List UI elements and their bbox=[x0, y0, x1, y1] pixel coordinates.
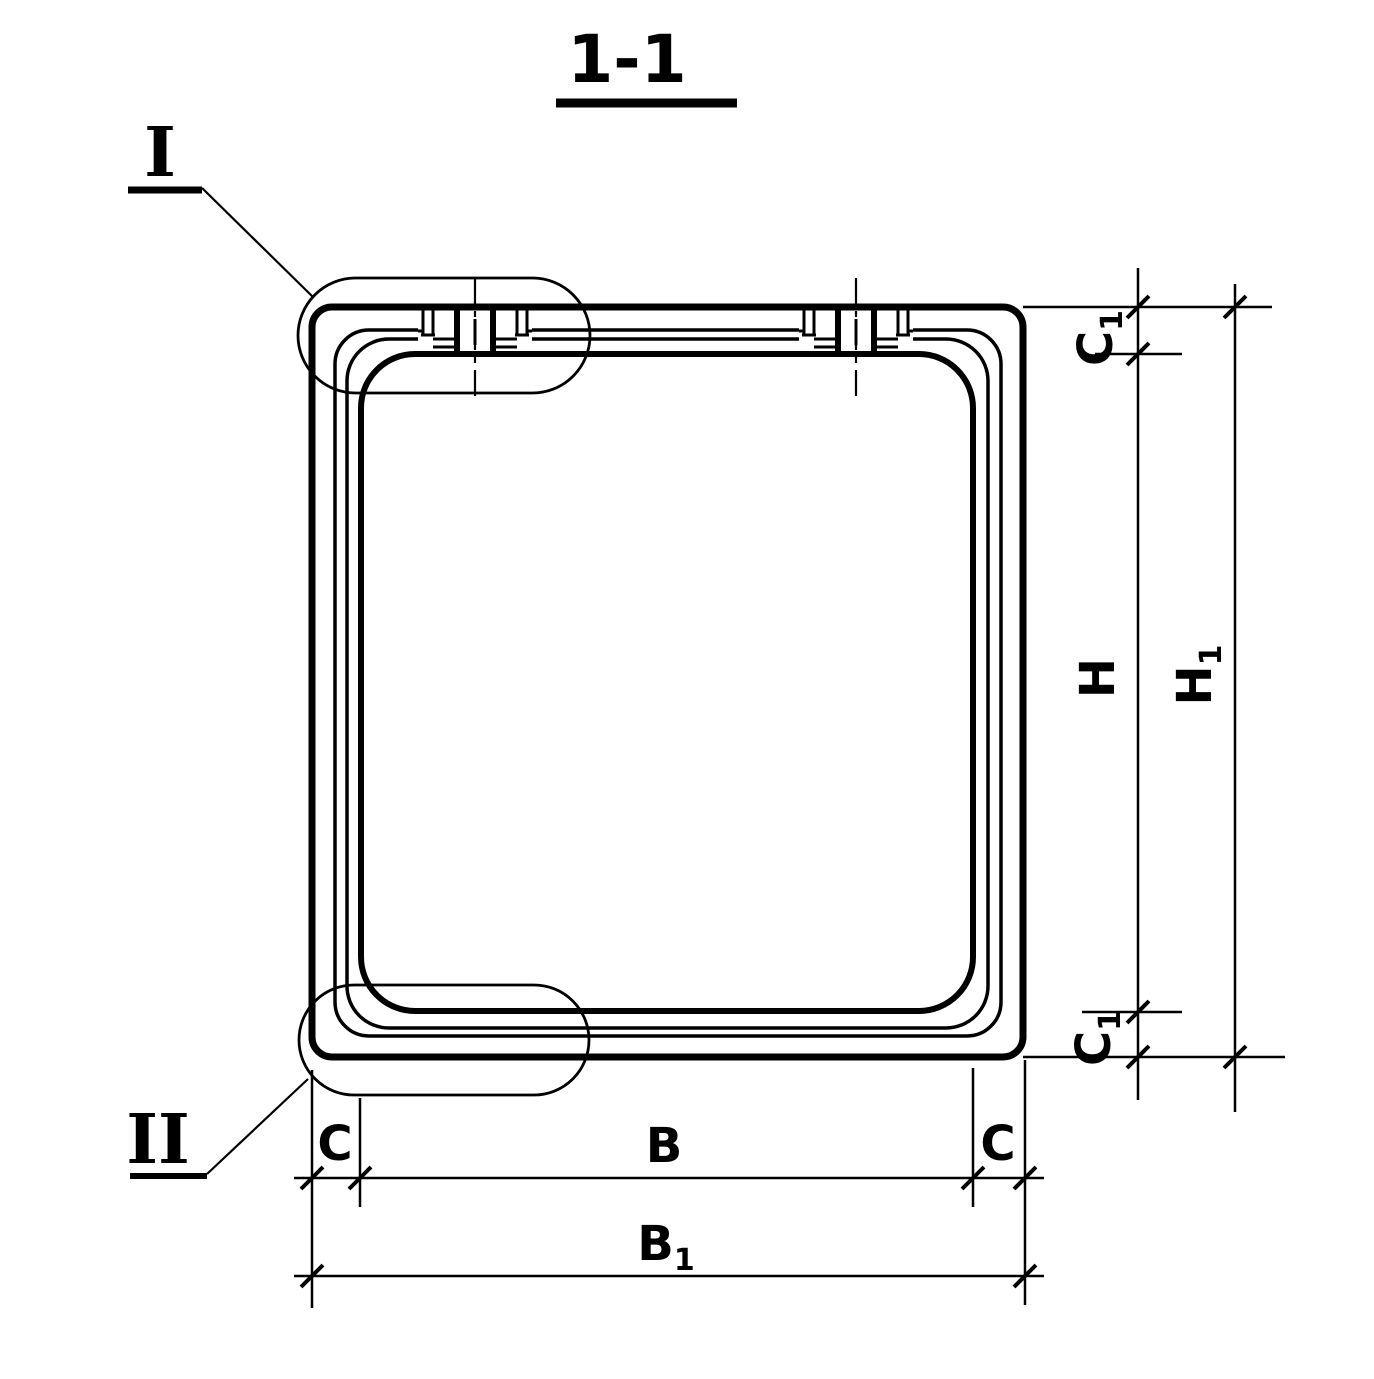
label-c-left: C bbox=[317, 1116, 352, 1172]
label-c1-top-sub: 1 bbox=[1095, 310, 1130, 331]
label-c1-top-base: C bbox=[1068, 331, 1124, 366]
frame-section bbox=[312, 307, 1023, 1057]
label-b: B bbox=[646, 1118, 683, 1174]
frame-joint-ring-outer bbox=[335, 330, 1001, 1036]
label-b-base: B bbox=[646, 1118, 683, 1174]
label-h1: H1 bbox=[1167, 644, 1229, 705]
frame-joint-ring-inner bbox=[347, 339, 988, 1028]
label-b1-base: B bbox=[637, 1216, 674, 1272]
label-c1-top: C1 bbox=[1068, 310, 1130, 366]
frame-inner-opening-outline bbox=[361, 354, 973, 1011]
width-dimensions: C B C B1 bbox=[294, 1060, 1044, 1308]
detail-ii-label: II bbox=[126, 1100, 190, 1180]
frame-outer-outline bbox=[312, 307, 1023, 1057]
label-c-left-base: C bbox=[317, 1116, 352, 1172]
top-wall-joint-1 bbox=[418, 278, 532, 402]
section-title-group: 1-1 bbox=[556, 21, 737, 103]
label-c1-bottom-base: C bbox=[1066, 1031, 1122, 1066]
label-h: H bbox=[1070, 658, 1126, 698]
label-b1: B1 bbox=[637, 1216, 694, 1278]
label-c1-bottom: C1 bbox=[1066, 1010, 1128, 1066]
section-drawing: 1-1 bbox=[0, 0, 1374, 1379]
section-title: 1-1 bbox=[567, 21, 686, 98]
label-h1-sub: 1 bbox=[1194, 644, 1229, 665]
label-b1-sub: 1 bbox=[674, 1243, 695, 1278]
top-wall-joint-2 bbox=[799, 278, 913, 402]
detail-ii-boundary bbox=[299, 985, 589, 1095]
height-dimensions: C1 H H1 C1 bbox=[1023, 268, 1285, 1112]
detail-i-leader bbox=[202, 188, 313, 297]
detail-ii-leader bbox=[207, 1079, 308, 1174]
label-h-base: H bbox=[1070, 658, 1126, 698]
label-c1-bottom-sub: 1 bbox=[1093, 1010, 1128, 1031]
drawing-sheet: 1-1 bbox=[0, 0, 1374, 1379]
detail-i-label: I bbox=[144, 113, 176, 193]
label-c-right: C bbox=[980, 1116, 1015, 1172]
label-h1-base: H bbox=[1167, 665, 1223, 705]
label-c-right-base: C bbox=[980, 1116, 1015, 1172]
